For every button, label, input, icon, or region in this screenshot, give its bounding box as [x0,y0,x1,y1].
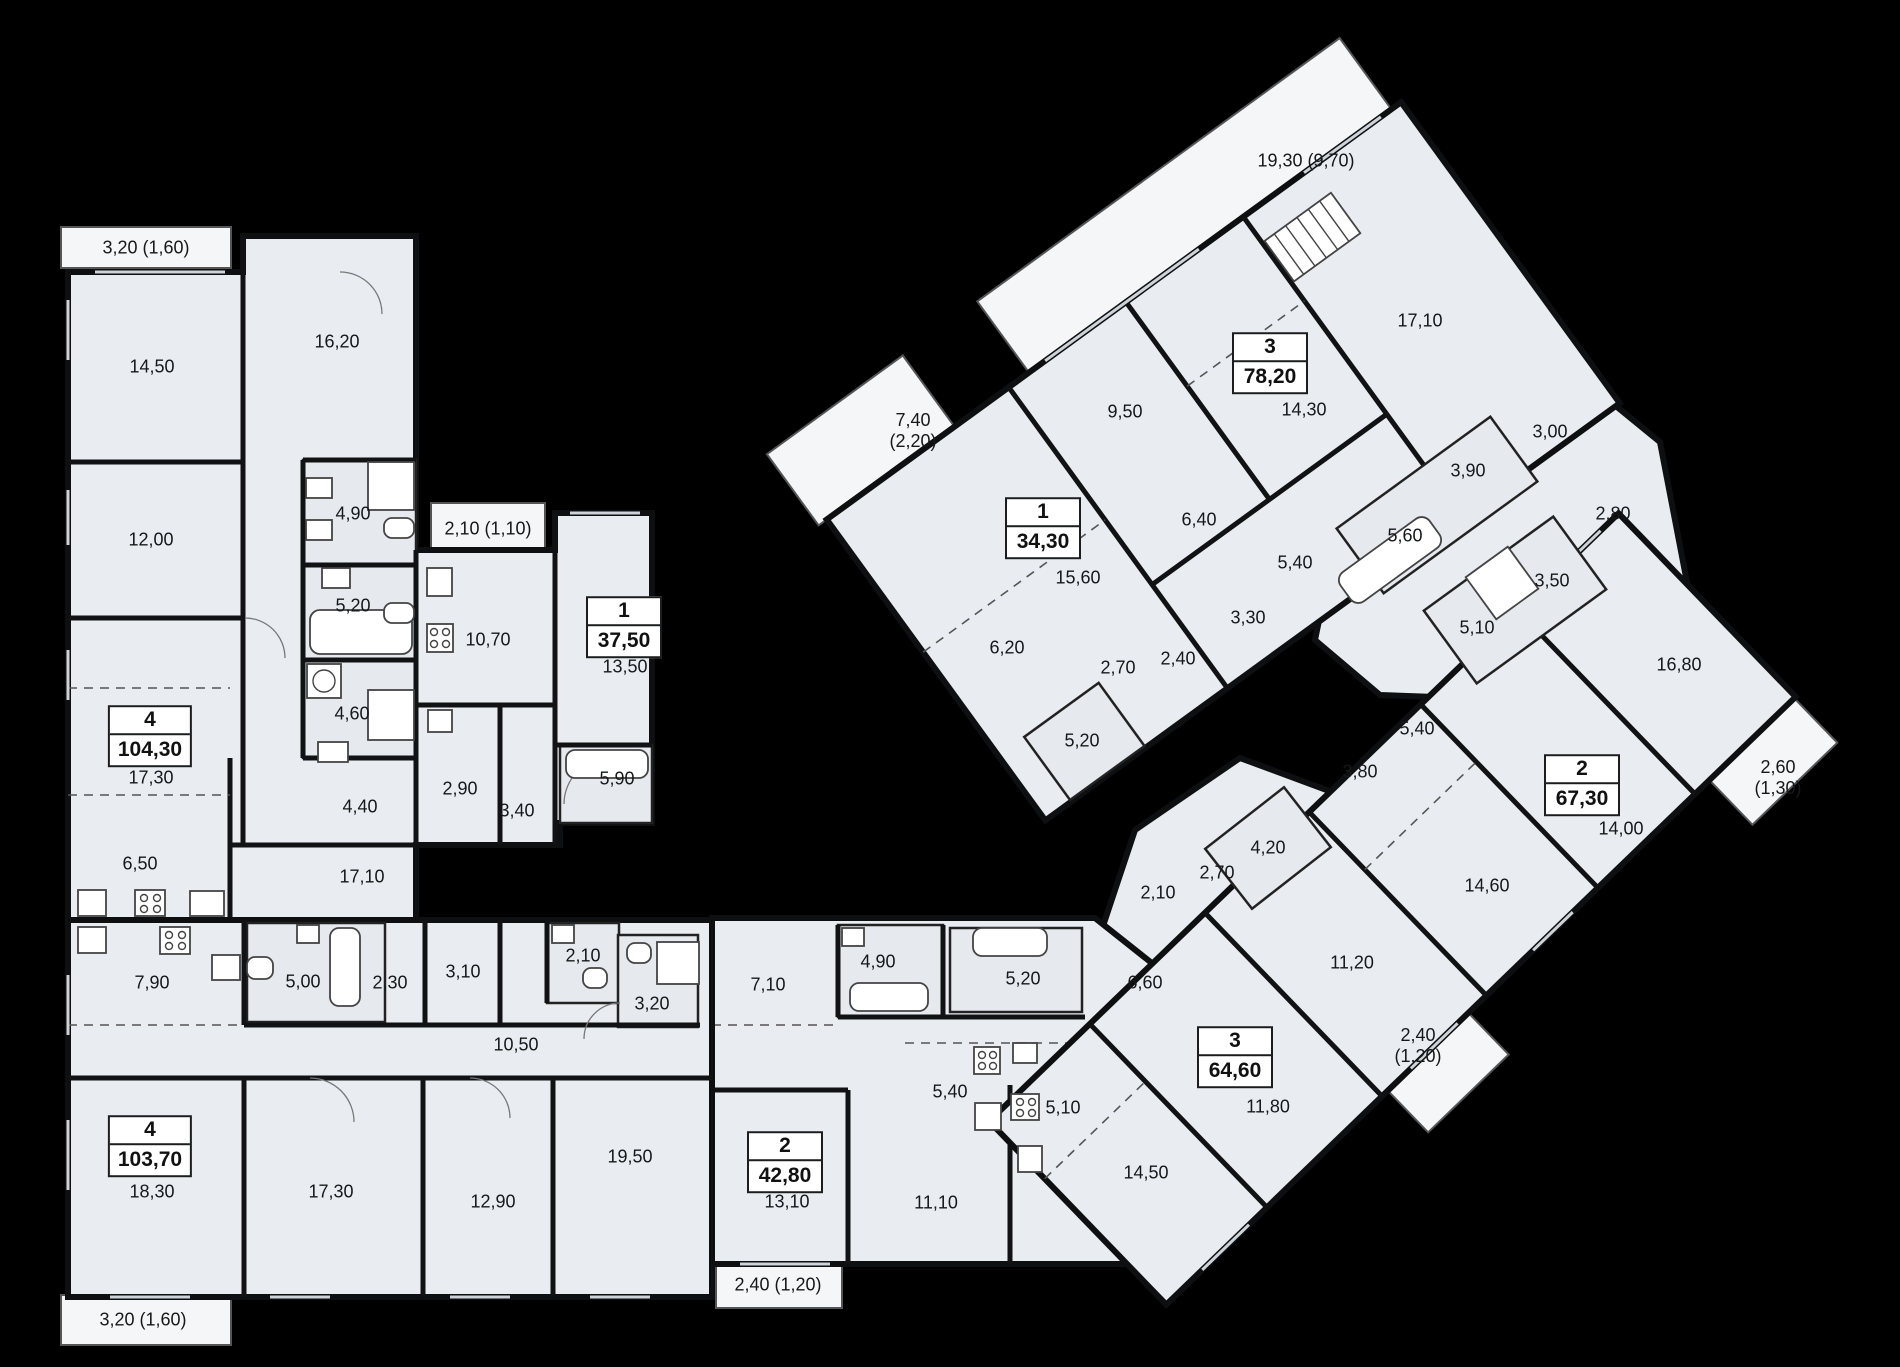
room-area-label: 3,30 [1230,607,1265,628]
room-area-label: 3,00 [1532,421,1567,442]
room-area-label: 19,50 [607,1146,652,1167]
room-area-label: 9,50 [1107,401,1142,422]
room-area-label: 17,10 [1397,310,1442,331]
room-area-label: 14,50 [129,356,174,377]
room-area-label: 14,00 [1598,818,1643,839]
room-area-label: 6,60 [1127,972,1162,993]
labels-layer: 3,20 (1,60)14,5016,2012,004,905,204,602,… [0,0,1900,1367]
room-area-label: 2,10 (1,10) [444,518,531,539]
apartment-area: 37,50 [588,626,660,655]
room-area-label: 12,00 [128,529,173,550]
apartment-badge: 242,80 [747,1131,823,1193]
room-area-label: 15,60 [1055,567,1100,588]
room-area-label: 5,20 [1005,968,1040,989]
room-area-label: 3,20 (1,60) [102,237,189,258]
room-area-label: 5,40 [1277,552,1312,573]
room-area-label: 11,10 [914,1192,958,1213]
room-area-label: 4,60 [334,703,369,724]
room-area-label: 2,40 (1,20) [1394,1025,1441,1067]
room-area-label: 3,80 [1342,761,1377,782]
room-area-label: 2,70 [1199,862,1234,883]
room-area-label: 10,70 [465,629,510,650]
room-area-label: 12,90 [470,1191,515,1212]
apartment-badge: 4103,70 [108,1115,192,1177]
room-area-label: 3,20 (1,60) [99,1309,186,1330]
room-area-label: 2,90 [442,778,477,799]
room-area-label: 2,70 [1100,657,1135,678]
room-area-label: 14,60 [1464,875,1509,896]
apartment-badge: 378,20 [1232,332,1308,394]
room-area-label: 11,20 [1330,952,1374,973]
apartment-number: 4 [110,1117,190,1145]
room-area-label: 3,90 [1450,460,1485,481]
room-area-label: 14,30 [1281,399,1326,420]
room-area-label: 3,50 [1534,570,1569,591]
room-area-label: 5,40 [1399,718,1434,739]
apartment-number: 4 [110,707,190,735]
apartment-number: 2 [749,1133,821,1161]
apartment-badge: 4104,30 [108,705,192,767]
apartment-area: 42,80 [749,1161,821,1190]
room-area-label: 19,30 (9,70) [1257,150,1354,171]
room-area-label: 6,40 [1181,509,1216,530]
apartment-area: 103,70 [110,1145,190,1174]
apartment-area: 104,30 [110,735,190,764]
room-area-label: 2,80 [1595,503,1630,524]
room-area-label: 7,90 [134,972,169,993]
room-area-label: 3,20 [634,993,669,1014]
apartment-number: 1 [1007,499,1079,527]
room-area-label: 4,90 [335,503,370,524]
room-area-label: 5,60 [1387,525,1422,546]
room-area-label: 7,10 [750,974,785,995]
floorplan-canvas: 3,20 (1,60)14,5016,2012,004,905,204,602,… [0,0,1900,1367]
room-area-label: 17,10 [339,866,384,887]
room-area-label: 5,10 [1459,617,1494,638]
apartment-area: 34,30 [1007,527,1079,556]
room-area-label: 2,30 [372,972,407,993]
room-area-label: 7,40 (2,20) [889,410,936,452]
apartment-badge: 134,30 [1005,497,1081,559]
room-area-label: 6,50 [122,853,157,874]
room-area-label: 5,20 [335,595,370,616]
room-area-label: 11,80 [1246,1096,1290,1117]
apartment-badge: 364,60 [1197,1026,1273,1088]
room-area-label: 16,80 [1656,654,1701,675]
room-area-label: 10,50 [493,1034,538,1055]
room-area-label: 14,50 [1123,1162,1168,1183]
room-area-label: 17,30 [308,1181,353,1202]
room-area-label: 5,20 [1064,730,1099,751]
room-area-label: 2,40 [1160,648,1195,669]
apartment-badge: 267,30 [1544,754,1620,816]
room-area-label: 16,20 [314,331,359,352]
room-area-label: 13,10 [764,1191,809,1212]
room-area-label: 18,30 [129,1181,174,1202]
apartment-area: 78,20 [1234,362,1306,391]
room-area-label: 4,20 [1250,837,1285,858]
apartment-number: 1 [588,598,660,626]
apartment-area: 64,60 [1199,1056,1271,1085]
apartment-number: 2 [1546,756,1618,784]
room-area-label: 2,60 (1,30) [1754,757,1801,799]
room-area-label: 3,40 [499,800,534,821]
apartment-number: 3 [1199,1028,1271,1056]
room-area-label: 2,10 [565,945,600,966]
room-area-label: 5,40 [932,1081,967,1102]
room-area-label: 2,10 [1140,882,1175,903]
room-area-label: 3,10 [445,961,480,982]
room-area-label: 13,50 [602,656,647,677]
room-area-label: 17,30 [128,767,173,788]
room-area-label: 5,90 [599,768,634,789]
room-area-label: 5,10 [1045,1097,1080,1118]
apartment-number: 3 [1234,334,1306,362]
room-area-label: 4,90 [860,951,895,972]
room-area-label: 6,20 [989,637,1024,658]
apartment-area: 67,30 [1546,784,1618,813]
room-area-label: 4,40 [342,796,377,817]
room-area-label: 5,00 [285,971,320,992]
room-area-label: 2,40 (1,20) [734,1274,821,1295]
apartment-badge: 137,50 [586,596,662,658]
